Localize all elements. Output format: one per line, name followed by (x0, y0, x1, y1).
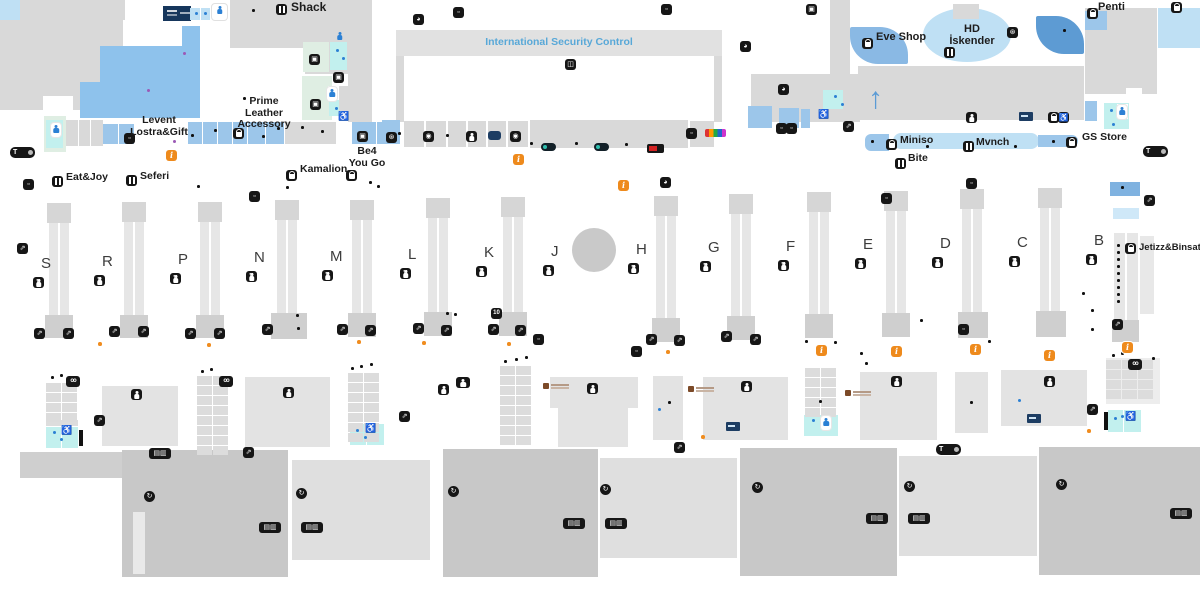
direction-arrow-up-icon: ↑ (868, 84, 883, 114)
esc-icon: ⇗ (750, 334, 761, 345)
food-icon (963, 141, 974, 152)
esc-icon: ⇗ (441, 325, 452, 336)
structure-block (886, 211, 906, 315)
wc-icon (1044, 376, 1055, 387)
esc-icon: ⇗ (843, 121, 854, 132)
map-dot (297, 327, 300, 330)
desk-cell (62, 413, 77, 422)
structure-block (20, 452, 132, 478)
esc-icon: ⇗ (138, 326, 149, 337)
map-dot (377, 185, 380, 188)
map-dot (1117, 279, 1120, 282)
map-dot (1117, 251, 1120, 254)
desk-cell (1138, 370, 1153, 379)
levent-line1: Levent (142, 114, 176, 126)
map-dot (321, 130, 324, 133)
esc-icon: ⇗ (365, 325, 376, 336)
map-dot (422, 341, 426, 345)
elevator-icon: ⇅ (1009, 256, 1020, 267)
map-dot (658, 408, 661, 411)
structure-block (426, 198, 450, 218)
elevator-icon: ⇅ (476, 266, 487, 277)
structure-block (731, 214, 751, 318)
elevator-icon: ⇅ (778, 260, 789, 271)
be4-line1: Be4 (357, 145, 376, 157)
levent-line2: Lostra&Gift (130, 126, 188, 138)
structure-block (292, 460, 430, 560)
map-dot (51, 376, 54, 379)
misc-icon: ▫ (453, 7, 464, 18)
prime-line2: Leather (245, 107, 283, 119)
desk-cell (516, 366, 531, 375)
map-dot (183, 52, 186, 55)
desk-cell (500, 426, 515, 435)
map-dot (1117, 300, 1120, 303)
desk-cell (197, 406, 212, 415)
desk-cell (516, 416, 531, 425)
pair-icon: ▤▥ (259, 522, 281, 533)
structure-block (443, 449, 598, 577)
desk-cell (348, 413, 363, 422)
pair-icon: ▤▥ (908, 513, 930, 524)
esc-icon: ⇗ (214, 328, 225, 339)
be4-line2: You Go (349, 157, 386, 169)
map-dot (286, 186, 289, 189)
map-dot (454, 313, 457, 316)
bag-icon (286, 170, 297, 181)
elevator-icon: ⇅ (1086, 254, 1097, 265)
structure-block (1104, 412, 1108, 430)
desk-cell (516, 406, 531, 415)
tealpill-icon (594, 143, 609, 151)
atm-icon (726, 422, 740, 431)
structure-block (1126, 88, 1142, 98)
esc-icon: ⇗ (646, 334, 657, 345)
circ-icon: ↻ (600, 484, 611, 495)
misc-icon: ▫ (533, 334, 544, 345)
personblue-icon (51, 123, 61, 137)
structure-block (801, 109, 810, 128)
map-dot (98, 342, 102, 346)
structure-block (163, 6, 191, 21)
hd-line1: HD (964, 23, 980, 35)
info-icon: i (513, 154, 524, 165)
desk-cell (364, 393, 379, 402)
esc-icon: ⇗ (337, 324, 348, 335)
map-dot (357, 340, 361, 344)
misc-icon: ▫ (661, 4, 672, 15)
food-icon (52, 176, 63, 187)
map-dot (1091, 309, 1094, 312)
desk-cell (1122, 380, 1137, 389)
art-icon: ▣ (309, 54, 320, 65)
esc-icon: ⇗ (17, 243, 28, 254)
desk-cell (62, 393, 77, 402)
flag-icon (488, 131, 501, 140)
desk-cell (500, 396, 515, 405)
map-dot (342, 57, 345, 60)
desk-cell (805, 378, 820, 387)
map-dot (147, 89, 150, 92)
circ-icon: ↻ (904, 481, 915, 492)
elevator-icon: ⇅ (932, 257, 943, 268)
desk-cell (821, 388, 836, 397)
map-dot (1110, 109, 1113, 112)
structure-block (277, 220, 297, 313)
desk-cell (500, 386, 515, 395)
food-icon (895, 158, 906, 169)
terminal-map[interactable]: Shack International Security Control Eve… (0, 0, 1200, 596)
gate-letter-K: K (484, 244, 494, 261)
cam-icon: ◉ (423, 131, 434, 142)
esc-icon: ⇗ (1087, 404, 1098, 415)
map-dot (860, 352, 863, 355)
map-dot (207, 343, 211, 347)
elevator-icon: ⇅ (94, 275, 105, 286)
map-dot (351, 367, 354, 370)
food-icon (276, 4, 287, 15)
shop-label-mvnch: Mvnch (976, 136, 1009, 148)
desk-cell (516, 426, 531, 435)
structure-block (805, 314, 833, 338)
desk-cell (197, 446, 212, 455)
map-dot (666, 350, 670, 354)
wheel-icon: ⊛ (386, 132, 397, 143)
structure-block (66, 120, 78, 146)
structure-block (122, 202, 146, 222)
misc-icon: ▫ (966, 178, 977, 189)
map-dot (446, 312, 449, 315)
gate-letter-C: C (1017, 234, 1028, 251)
map-dot (1117, 265, 1120, 268)
gate-letter-H: H (636, 241, 647, 258)
map-dot (871, 140, 874, 143)
gate-letter-N: N (254, 249, 265, 266)
misc-icon: ▫ (249, 191, 260, 202)
wheelchairb-icon: ♿ (365, 423, 376, 434)
esc-icon: ⇗ (1112, 319, 1123, 330)
structure-block (1040, 208, 1060, 314)
wc-icon (891, 376, 902, 387)
elevator-icon: ⇅ (33, 277, 44, 288)
desk-cell (213, 386, 228, 395)
security-control-label: International Security Control (396, 36, 722, 48)
pair-icon: ▤▥ (563, 518, 585, 529)
map-dot (668, 401, 671, 404)
shop-label-shack: Shack (291, 0, 326, 14)
map-dot (1117, 293, 1120, 296)
desk-cell (1106, 360, 1121, 369)
structure-block (200, 222, 220, 315)
map-dot (201, 370, 204, 373)
circ-icon: ↻ (752, 482, 763, 493)
shop-label-be4-you-go: Be4 You Go (345, 146, 389, 169)
desk-cell (46, 393, 61, 402)
wc-icon (966, 112, 977, 123)
structure-block (80, 82, 200, 118)
map-dot (575, 142, 578, 145)
map-dot (920, 319, 923, 322)
map-dot (1112, 354, 1115, 357)
esc-icon: ⇗ (674, 442, 685, 453)
brown-icon (845, 390, 873, 397)
desk-cell (805, 388, 820, 397)
elevator-icon: ⇅ (170, 273, 181, 284)
structure-block (807, 192, 831, 212)
map-dot (214, 129, 217, 132)
map-dot (398, 132, 401, 135)
desk-cell (805, 398, 820, 407)
structure-block (198, 202, 222, 222)
misc-icon: ▫ (958, 324, 969, 335)
desk-cell (500, 416, 515, 425)
map-dot (1121, 415, 1124, 418)
misc-icon: ▫ (881, 193, 892, 204)
structure-block (1036, 16, 1084, 54)
pair-icon: ▤▥ (301, 522, 323, 533)
atm-icon (1027, 414, 1041, 423)
shop-label-seferi: Seferi (140, 170, 169, 182)
info-icon: i (891, 346, 902, 357)
desk-cell (500, 376, 515, 385)
structure-block (1158, 8, 1200, 48)
gate-letter-R: R (102, 253, 113, 270)
esc-icon: ⇗ (243, 447, 254, 458)
misc-icon: ▫ (631, 346, 642, 357)
shop-label-kamalion: Kamalion (300, 163, 347, 175)
map-dot (60, 374, 63, 377)
elevator-icon: ⇅ (246, 271, 257, 282)
circ-icon: ↻ (448, 486, 459, 497)
map-dot (1112, 123, 1115, 126)
map-dot (369, 181, 372, 184)
elevator-icon: ⇅ (322, 270, 333, 281)
pill-icon (1143, 146, 1168, 157)
map-dot (507, 342, 511, 346)
esc-icon: ⇗ (185, 328, 196, 339)
desk-cell (62, 403, 77, 412)
redpill-icon (647, 144, 664, 153)
desk-cell (821, 368, 836, 377)
map-dot (195, 12, 198, 15)
map-dot (504, 360, 507, 363)
bag-icon (1066, 137, 1077, 148)
desk-cell (364, 373, 379, 382)
shop-label-levent: Levent Lostra&Gift (115, 115, 203, 138)
map-dot (360, 365, 363, 368)
structure-block (1036, 311, 1066, 337)
structure-block (748, 106, 772, 128)
elevator-icon: ⇅ (700, 261, 711, 272)
info-icon: i (1044, 350, 1055, 361)
structure-block (740, 448, 897, 576)
desk-cell (1122, 370, 1137, 379)
brown-icon (688, 386, 716, 393)
structure-block (656, 216, 676, 318)
structure-block (501, 197, 525, 217)
desk-cell (500, 406, 515, 415)
map-dot (834, 341, 837, 344)
art-icon: ▣ (357, 131, 368, 142)
map-dot (1117, 244, 1120, 247)
map-dot (1063, 29, 1066, 32)
structure-block (960, 189, 984, 209)
map-dot (1117, 286, 1120, 289)
gate-letter-L: L (408, 246, 416, 263)
structure-block (1038, 188, 1062, 208)
desk-cell (805, 408, 820, 417)
misc-icon: ▫ (686, 128, 697, 139)
desk-cell (348, 433, 363, 442)
prime-line1: Prime (249, 95, 278, 107)
desk-cell (364, 403, 379, 412)
gate-letter-E: E (863, 236, 873, 253)
structure-block (79, 120, 90, 146)
info-icon: i (1122, 342, 1133, 353)
structure-block (0, 0, 20, 20)
map-dot (988, 340, 991, 343)
tealpill-icon (541, 143, 556, 151)
wc-icon (741, 381, 752, 392)
structure-block (79, 430, 83, 446)
map-dot (356, 429, 359, 432)
map-dot (515, 358, 518, 361)
info-icon: i (166, 150, 177, 161)
map-dot (812, 419, 815, 422)
shop-label-jetizz-binsat: Jetizz&Binsat (1139, 242, 1200, 253)
structure-block (124, 222, 144, 315)
map-dot (805, 340, 808, 343)
desk-cell (213, 406, 228, 415)
desk-cell (213, 436, 228, 445)
gate-letter-F: F (786, 238, 795, 255)
esc-icon: ⇗ (34, 328, 45, 339)
map-dot (335, 107, 338, 110)
structure-block (882, 313, 910, 337)
map-dot (970, 401, 973, 404)
pair-icon: ▤▥ (149, 448, 171, 459)
personblue-icon (327, 87, 337, 101)
map-dot (1121, 186, 1124, 189)
walk-icon (466, 131, 477, 142)
shop-label-miniso: Miniso (900, 134, 933, 146)
co-icon: oo (1128, 359, 1142, 370)
esc-icon: ⇗ (262, 324, 273, 335)
atm-icon (1019, 112, 1033, 121)
bag-icon (1087, 8, 1098, 19)
elevator-icon: ⇅ (628, 263, 639, 274)
info-icon: i (816, 345, 827, 356)
shop-label-eat-joy: Eat&Joy (66, 171, 108, 183)
desk-cell (1106, 380, 1121, 389)
desk-cell (348, 373, 363, 382)
map-dot (364, 436, 367, 439)
desk-cell (213, 416, 228, 425)
desk-cell (821, 398, 836, 407)
desk-cell (348, 403, 363, 412)
gate-letter-G: G (708, 239, 720, 256)
info-icon: i (618, 180, 629, 191)
map-dot (865, 362, 868, 365)
elevator-icon: ⇅ (543, 265, 554, 276)
structure-block (448, 121, 466, 147)
co-icon: oo (66, 376, 80, 387)
brown-icon (543, 383, 571, 390)
structure-block (809, 212, 829, 316)
co-icon: oo (219, 376, 233, 387)
desk-cell (197, 436, 212, 445)
map-dot (530, 142, 533, 145)
shop-label-hd-iskender: HD İskender (935, 24, 1009, 47)
desk-cell (213, 396, 228, 405)
map-dot (841, 103, 844, 106)
desk-cell (46, 403, 61, 412)
structure-block (572, 228, 616, 272)
desk-cell (197, 416, 212, 425)
personblue-icon (1117, 105, 1127, 119)
structure-block (558, 408, 628, 447)
structure-block (182, 26, 200, 46)
pair-icon: ▤▥ (605, 518, 627, 529)
clock-icon: ◕ (778, 84, 789, 95)
wc-icon (131, 389, 142, 400)
map-dot (204, 12, 207, 15)
desk-cell (1138, 380, 1153, 389)
map-dot (1082, 292, 1085, 295)
map-dot (1117, 272, 1120, 275)
clogo-icon (705, 129, 726, 137)
desk-cell (197, 376, 212, 385)
map-dot (446, 134, 449, 137)
esc-icon: ⇗ (1144, 195, 1155, 206)
map-dot (197, 185, 200, 188)
gate-letter-D: D (940, 235, 951, 252)
esc-icon: ⇗ (94, 415, 105, 426)
pair-icon: ▤▥ (1170, 508, 1192, 519)
esc-icon: ⇗ (413, 323, 424, 334)
scan-icon: ◫ (565, 59, 576, 70)
map-dot (1091, 328, 1094, 331)
circ-icon: ↻ (144, 491, 155, 502)
desk-cell (348, 383, 363, 392)
map-dot (1117, 258, 1120, 261)
structure-block (271, 313, 307, 339)
shop-label-bite: Bite (908, 152, 928, 164)
map-dot (1014, 145, 1017, 148)
esc-icon: ⇗ (399, 411, 410, 422)
structure-block (91, 120, 103, 146)
art-icon: ▣ (333, 72, 344, 83)
shop-label-penti: Penti (1098, 1, 1125, 13)
gate-letter-B: B (1094, 232, 1104, 249)
structure-block (275, 200, 299, 220)
map-dot (173, 140, 176, 143)
circ-icon: ↻ (296, 488, 307, 499)
bag-icon (862, 38, 873, 49)
shop-label-prime-leather: Prime Leather Accessory (222, 96, 306, 131)
structure-block (404, 121, 424, 147)
desk-cell (1106, 370, 1121, 379)
map-dot (819, 400, 822, 403)
food-icon (944, 47, 955, 58)
structure-block (600, 458, 737, 558)
bag-icon (346, 170, 357, 181)
structure-block (203, 122, 217, 144)
structure-block (428, 218, 448, 315)
desk-cell (500, 366, 515, 375)
clock-icon: ◕ (740, 41, 751, 52)
desk-cell (1106, 390, 1121, 399)
